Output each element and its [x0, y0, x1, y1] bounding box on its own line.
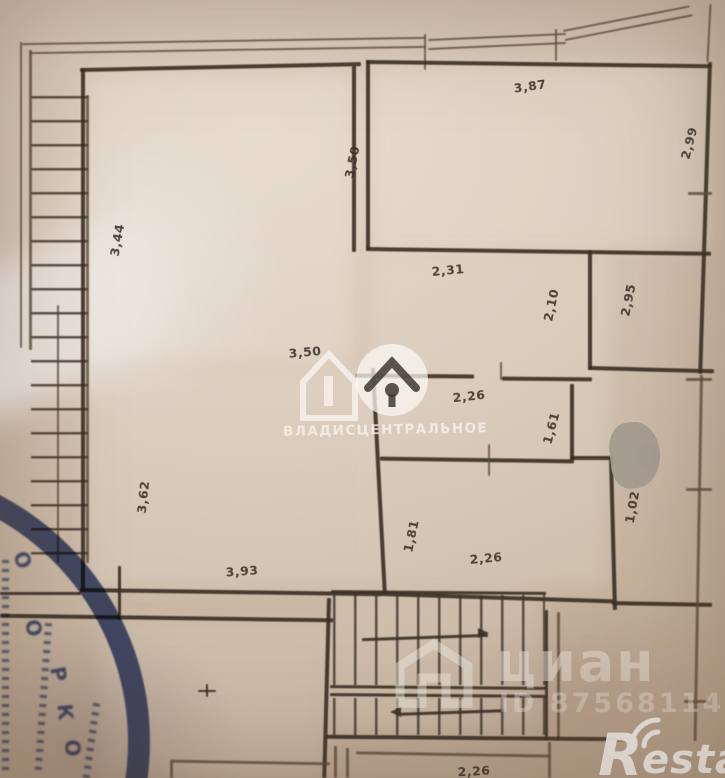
floor-plan-photo: 3,503,443,872,992,312,102,953,502,261,61…: [0, 0, 725, 778]
photo-shadow: [0, 620, 240, 778]
photo-shadow: [425, 588, 725, 778]
